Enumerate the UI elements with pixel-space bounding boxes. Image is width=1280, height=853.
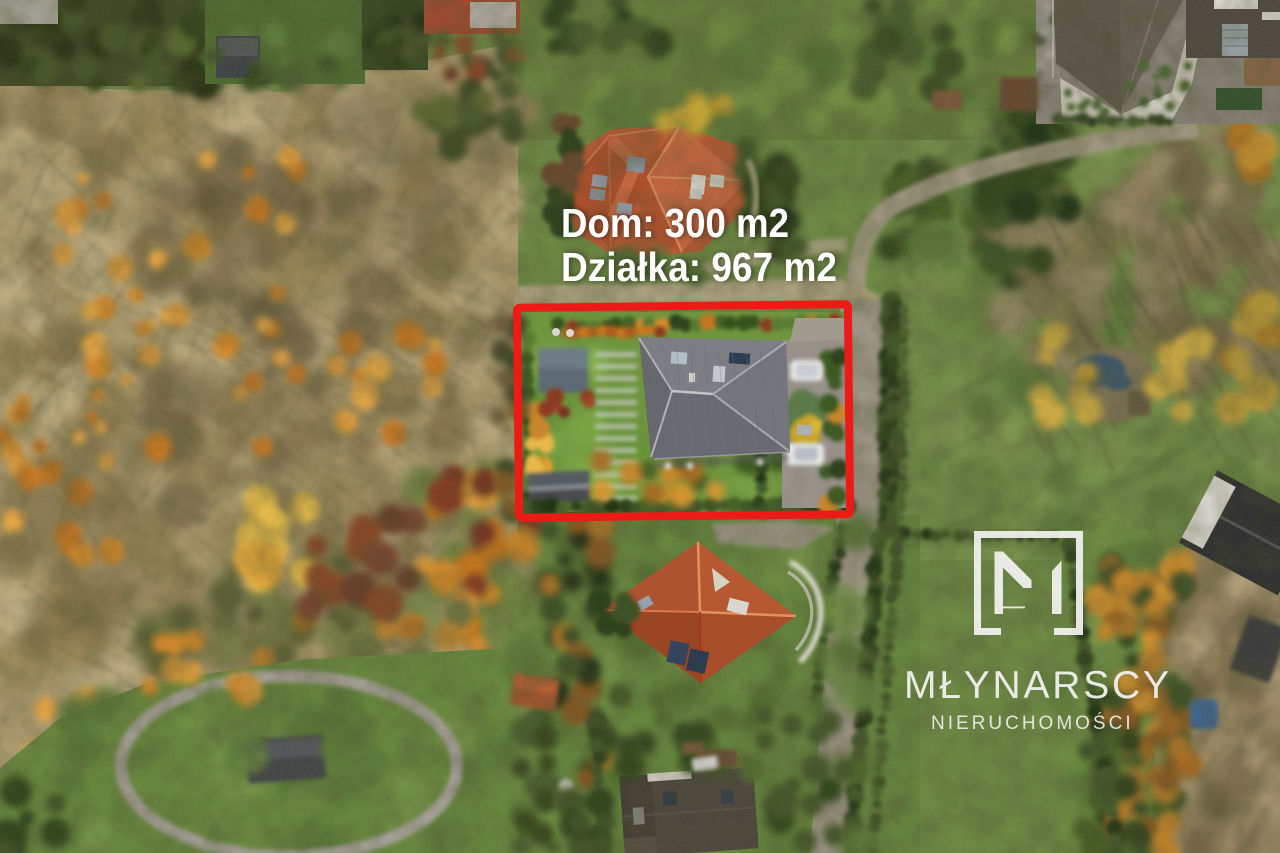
svg-text:Działka: 967 m2: Działka: 967 m2 [561,244,837,290]
svg-text:MŁYNARSCY: MŁYNARSCY [904,664,1172,707]
svg-text:NIERUCHOMOŚCI: NIERUCHOMOŚCI [931,712,1133,734]
svg-text:Dom: 300 m2: Dom: 300 m2 [561,200,789,246]
